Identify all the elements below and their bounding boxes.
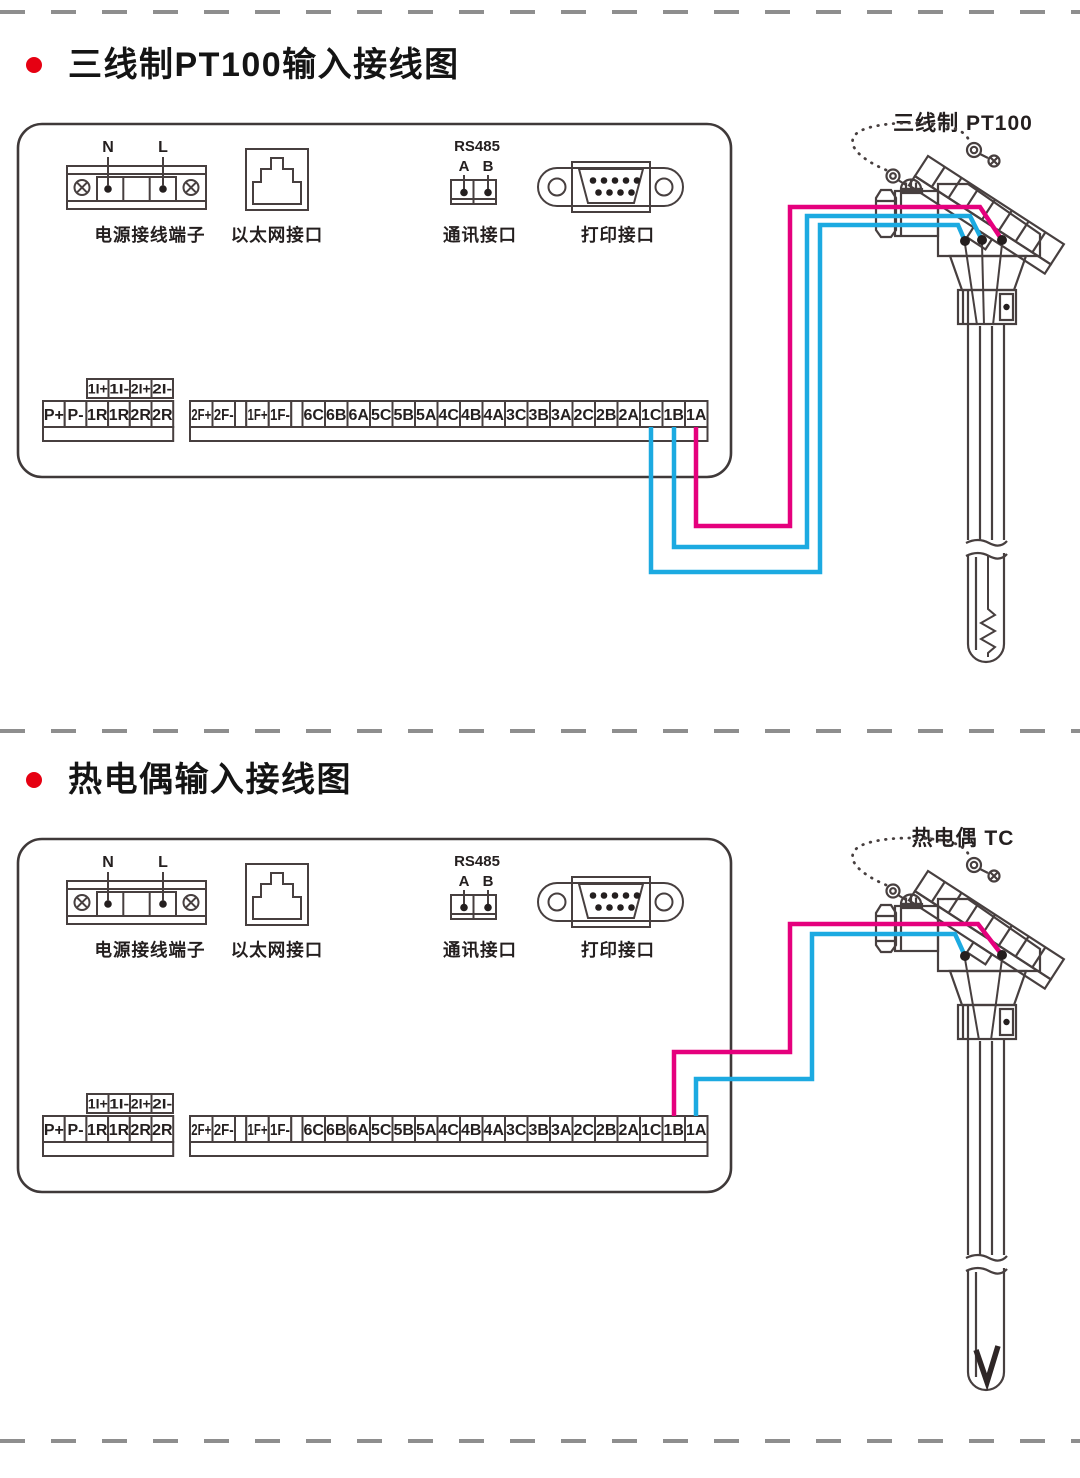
section-title: 热电偶输入接线图 [68,757,352,803]
head-terminal-dots [960,235,1007,246]
wire-1a-pink [696,207,1002,526]
dashed-border-bottom [0,1439,1080,1443]
dashed-border-top [0,10,1080,14]
head-terminal-dots [960,950,1007,961]
pt100-wiring-figure: 三线制 PT100 [0,94,1080,679]
section-header-tc: 热电偶输入接线图 [26,757,1080,803]
dashed-divider [0,729,1080,733]
section-header-pt100: 三线制PT100输入接线图 [26,42,1080,88]
red-bullet-icon [26,772,42,788]
wire-1a-blue [696,934,965,1116]
tc-wiring-figure: 热电偶 TC [0,809,1080,1427]
section-title: 三线制PT100输入接线图 [68,42,460,88]
red-bullet-icon [26,57,42,73]
